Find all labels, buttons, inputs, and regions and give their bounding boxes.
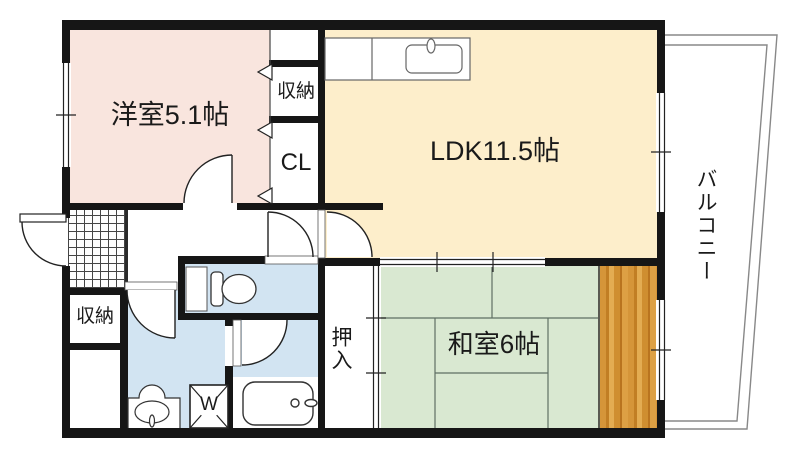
- western-room-label: 洋室5.1帖: [90, 101, 250, 129]
- wood-deck-strip: [598, 266, 659, 428]
- closet-cl-label: CL: [276, 150, 316, 175]
- balcony-outline: [665, 35, 777, 429]
- washing-machine-label: W: [194, 395, 224, 415]
- entrance-step-edge: [125, 208, 128, 290]
- closet-top-label: 収納: [273, 82, 319, 102]
- floor-plan: 洋室5.1帖 LDK11.5帖 和室6帖 収納 CL 収納 押入 バルコニー W: [0, 0, 800, 459]
- entrance-tile-floor: [68, 208, 126, 288]
- bathtub-icon: [243, 382, 317, 425]
- washroom-floor: [128, 290, 178, 428]
- storage-label: 収納: [70, 307, 120, 327]
- oshiire-label: 押入: [329, 303, 351, 395]
- bath-entry-floor: [233, 320, 318, 377]
- japanese-room-label: 和室6帖: [414, 331, 574, 358]
- balcony-label: バルコニー: [694, 158, 716, 292]
- ldk-label: LDK11.5帖: [415, 137, 575, 165]
- toilet-room-floor: [185, 264, 318, 313]
